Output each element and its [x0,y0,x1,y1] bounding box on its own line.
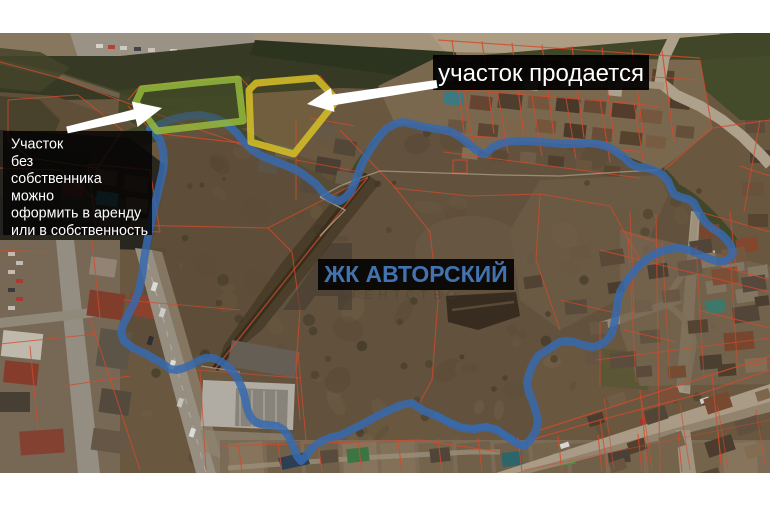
svg-text:или в собственность: или в собственность [11,223,148,239]
svg-text:без: без [11,154,34,170]
svg-text:оформить в аренду: оформить в аренду [11,206,142,222]
svg-text:собственника: собственника [11,171,102,187]
svg-text:можно: можно [11,188,54,204]
svg-text:Участок: Участок [11,137,64,153]
svg-text:участок продается: участок продается [438,60,644,87]
svg-text:ЖК АВТОРСКИЙ: ЖК АВТОРСКИЙ [323,260,507,287]
